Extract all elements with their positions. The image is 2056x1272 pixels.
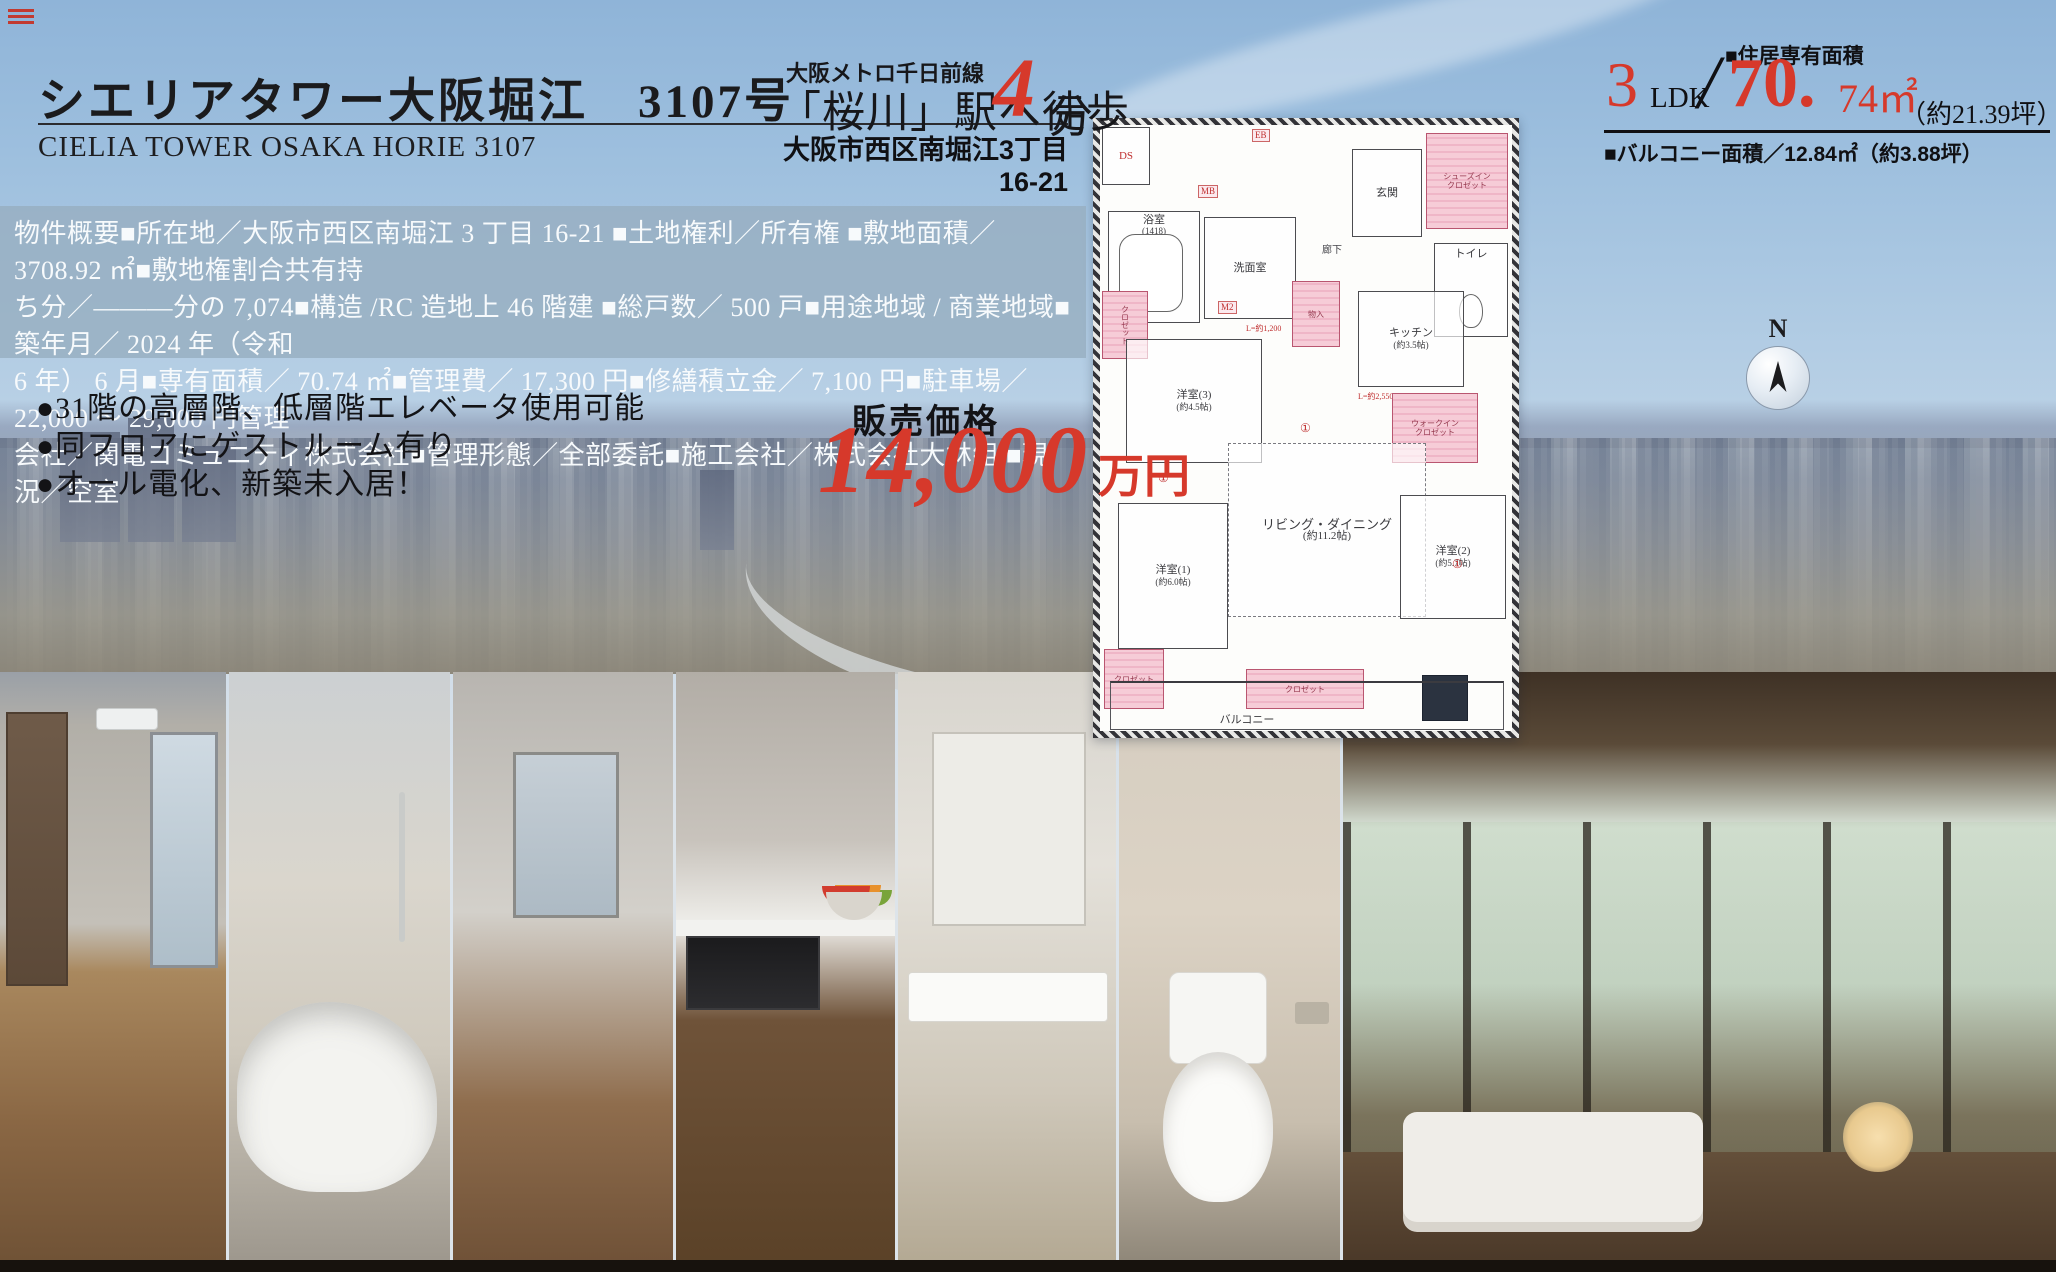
feature-item-2: ●同フロアにゲストルーム有り — [36, 428, 645, 466]
overview-line-2: ち分／―――分の 7,074■構造 /RC 造地上 46 階建 ■総戸数／ 50… — [14, 289, 1072, 363]
photo-room-window — [150, 732, 218, 968]
photo-kitchen-cooktop — [686, 936, 820, 1010]
photo-vanity-counter — [908, 972, 1108, 1022]
photo-toilet-tank — [1169, 972, 1267, 1064]
photo-bathroom — [229, 672, 450, 1272]
plan-kitchen: キッチン (約3.5帖) — [1358, 291, 1464, 387]
feature-item-3: ●オール電化、新築未入居！ — [36, 466, 645, 504]
plan-circle-mark: ① — [1452, 557, 1463, 572]
plan-entrance: 玄関 — [1352, 149, 1422, 237]
area-underline — [1604, 130, 2050, 133]
price-value: 14,000 万円 — [818, 404, 1190, 515]
price-unit: 万円 — [1098, 440, 1190, 506]
photo-lamp — [1843, 1102, 1913, 1172]
photo-room-aircon — [96, 708, 158, 730]
plan-dim-label: L=約1,200 — [1246, 323, 1281, 334]
photo-paper-holder — [1295, 1002, 1329, 1024]
photo-toilet-bowl — [1163, 1052, 1273, 1202]
ldk-number: 3 — [1606, 48, 1638, 122]
overview-line-1: 物件概要■所在地／大阪市西区南堀江 3 丁目 16-21 ■土地権利／所有権 ■… — [14, 215, 1072, 289]
photo-living-window-mullions — [1343, 822, 2056, 1152]
station-walk-minutes: 4 — [993, 40, 1035, 137]
bottom-border-bar — [0, 1260, 2056, 1272]
plan-circle-mark: ① — [1300, 421, 1311, 436]
plan-hall-label: 廊下 — [1322, 241, 1342, 256]
flyer-canvas: シエリアタワー大阪堀江 3107号 CIELIA TOWER OSAKA HOR… — [0, 0, 2056, 1272]
compass-north-label: N — [1742, 314, 1814, 344]
balcony-area-line: ■バルコニー面積／12.84㎡（約3.88坪） — [1604, 138, 1983, 168]
corner-logo-mark — [8, 8, 34, 24]
photo-kitchen-counter — [676, 920, 895, 936]
area-tsubo: （約21.39坪） — [1900, 94, 2056, 131]
page-title: シエリアタワー大阪堀江 3107号 — [38, 62, 794, 131]
photo-living-room — [1343, 672, 2056, 1272]
photo-western-room — [0, 672, 226, 1272]
photo-bedroom — [453, 672, 673, 1272]
price-amount: 14,000 — [818, 404, 1088, 515]
plan-mb-label: MB — [1198, 185, 1218, 198]
plan-balcony: バルコニー — [1110, 681, 1504, 730]
feature-item-1: ●31階の高層階、低層階エレベータ使用可能 — [36, 390, 645, 428]
photo-kitchen — [676, 672, 895, 1272]
area-slash: / — [1698, 40, 1719, 127]
plan-storage: 物入 — [1292, 281, 1340, 347]
plan-bedroom-1: 洋室(1) (約6.0帖) — [1118, 503, 1228, 649]
plan-dim-label: L=約2,550 — [1358, 391, 1393, 402]
photo-fruit-bowl — [826, 892, 882, 920]
page-subtitle: CIELIA TOWER OSAKA HORIE 3107 — [38, 131, 536, 164]
photo-room-door — [6, 712, 68, 986]
photo-toilet — [1119, 672, 1340, 1272]
photo-washbasin — [898, 672, 1116, 1272]
photo-sofa — [1403, 1112, 1703, 1222]
photo-bath-grab-bar — [399, 792, 405, 942]
compass-needle-icon — [1758, 358, 1798, 398]
feature-list: ●31階の高層階、低層階エレベータ使用可能 ●同フロアにゲストルーム有り ●オー… — [36, 390, 645, 504]
property-overview-band: 物件概要■所在地／大阪市西区南堀江 3 丁目 16-21 ■土地権利／所有権 ■… — [0, 206, 1086, 358]
photo-vanity-mirror — [932, 732, 1086, 926]
photo-bathtub — [237, 1002, 437, 1192]
compass: N — [1742, 314, 1814, 410]
property-address: 大阪市西区南堀江3丁目16-21 — [760, 128, 1068, 198]
plan-balcony-label: バルコニー — [1111, 711, 1383, 727]
area-size-main: 70. — [1728, 44, 1816, 124]
photo-bedroom-window — [513, 752, 619, 918]
compass-disc — [1746, 346, 1810, 410]
plan-shoes-in-closet: シューズイン クロゼット — [1426, 133, 1508, 229]
plan-eb-label: EB — [1252, 129, 1270, 142]
plan-living-dining: リビング・ダイニング (約11.2帖) — [1228, 443, 1426, 617]
plan-m2-label: M2 — [1218, 301, 1237, 314]
